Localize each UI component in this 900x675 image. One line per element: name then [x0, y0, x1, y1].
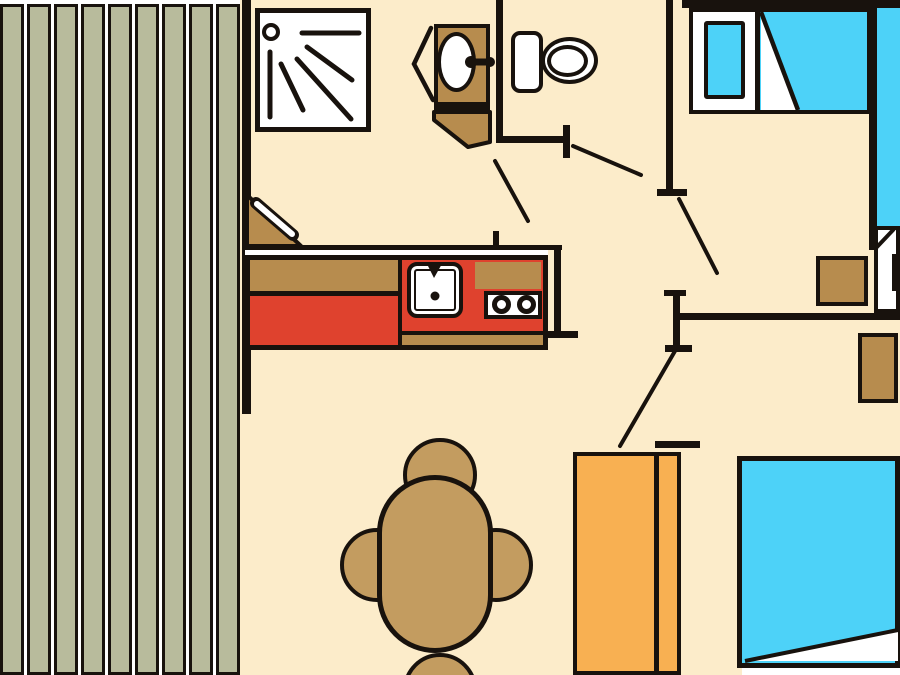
floorplan-canvas: [0, 0, 900, 675]
kitchen-worktop-brown-right: [475, 262, 541, 289]
washbasin-counter-edge: [434, 103, 490, 112]
washbasin-bowl: [437, 32, 476, 92]
shower-head-icon: [262, 23, 280, 41]
storage-cube: [858, 333, 898, 403]
entrance-door-swing: [247, 195, 301, 246]
wall-terrace-interior: [242, 0, 251, 414]
deck-plank: [108, 4, 132, 675]
single-bed-partial-blanket: [877, 8, 900, 227]
deck-plank: [216, 4, 240, 675]
door-swing-bedroom1: [679, 199, 717, 273]
doorframe-tick-wardrobe: [655, 441, 700, 448]
doorframe-tick-hall-bottom: [665, 345, 692, 352]
wall-hall-horizontal: [680, 313, 900, 320]
doorframe-tick-hall-top: [664, 290, 686, 296]
bedside-table: [816, 256, 868, 306]
door-swing-wc: [573, 146, 641, 175]
single-bed-blanket: [756, 8, 871, 114]
kitchen-unit-red-left: [250, 296, 398, 345]
wall-hall-door-post: [673, 296, 680, 347]
terrace-decking: [0, 0, 240, 675]
wall-kitchen-right: [554, 248, 561, 337]
deck-plank: [189, 4, 213, 675]
hob-burner-right: [517, 295, 536, 314]
deck-plank: [135, 4, 159, 675]
wall-bedroom1-left: [666, 0, 673, 194]
toilet-cistern: [511, 31, 543, 93]
wall-wc-bottom: [496, 136, 569, 143]
dining-table: [377, 475, 493, 653]
double-bed-blanket: [737, 456, 900, 668]
doorframe-tick-wc: [563, 125, 570, 158]
deck-plank: [27, 4, 51, 675]
wardrobe: [573, 452, 681, 675]
door-swing-hall: [620, 351, 675, 446]
doorframe-tick-kitchen: [545, 331, 578, 338]
wardrobe-divider: [654, 454, 659, 675]
single-bed-pillow: [704, 21, 745, 99]
wall-wc-left: [496, 0, 503, 142]
double-bed-sheet-bottom: [742, 668, 900, 675]
kitchen-sink: [407, 262, 463, 318]
kitchen-plinth-brown: [402, 335, 543, 345]
wall-top: [682, 0, 900, 8]
deck-plank: [0, 4, 24, 675]
deck-plank: [81, 4, 105, 675]
hob-burner-left: [492, 295, 511, 314]
deck-plank: [54, 4, 78, 675]
doorframe-tick-bedroom1: [657, 189, 687, 196]
fixture-partial-glyph: [892, 254, 900, 291]
toilet-seat: [547, 45, 588, 77]
dining-chair-bottom: [403, 653, 477, 675]
kitchen-worktop-brown: [250, 260, 398, 291]
door-swing-shower-room: [495, 161, 528, 221]
deck-plank: [162, 4, 186, 675]
